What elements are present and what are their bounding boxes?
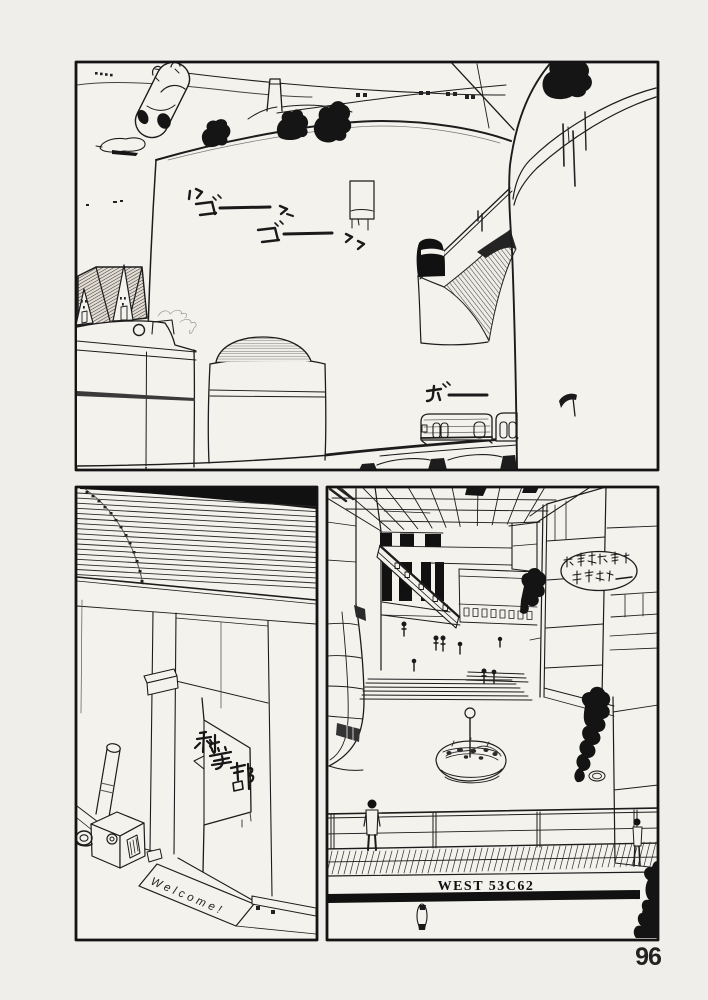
svg-text:96: 96 bbox=[635, 943, 661, 971]
